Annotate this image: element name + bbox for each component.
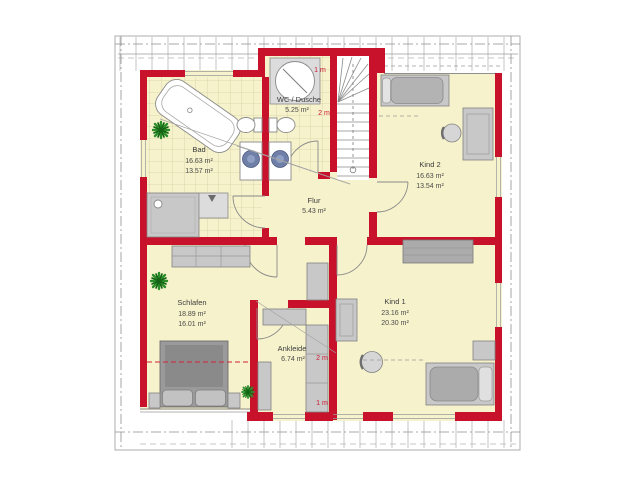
schlafen-net: 16.01 m²	[178, 321, 206, 328]
marker-south-2m: 2 m	[316, 355, 328, 362]
marker-north-1m: 1 m	[314, 67, 326, 74]
kind1-name: Kind 1	[384, 297, 405, 306]
toilet-icon	[237, 118, 262, 133]
closet-icon	[306, 325, 328, 412]
marker-north-2m: 2 m	[318, 110, 330, 117]
nightstand-icon	[473, 341, 495, 360]
wardrobe-icon	[172, 246, 250, 267]
bed-icon	[426, 363, 494, 405]
plant-icon	[151, 273, 167, 289]
toilet-icon	[269, 118, 295, 133]
kind2-gross: 16.63 m²	[416, 173, 444, 180]
kind1-net: 20.30 m²	[381, 320, 409, 327]
desk-icon	[463, 108, 493, 160]
closet-icon	[307, 263, 328, 300]
wc-gross: 5.25 m²	[285, 107, 309, 114]
double-bed-icon	[149, 341, 240, 408]
shelf-icon	[403, 240, 473, 263]
bad-name: Bad	[192, 145, 205, 154]
bad-gross: 16.63 m²	[185, 158, 213, 165]
marker-south-1m: 1 m	[316, 400, 328, 407]
ankleide-gross: 6.74 m²	[281, 356, 305, 363]
chair-icon	[361, 352, 383, 373]
schlafen-gross: 18.89 m²	[178, 311, 206, 318]
wc-name: WC / Dusche	[277, 95, 321, 104]
kind1-gross: 23.16 m²	[381, 310, 409, 317]
closet-icon	[263, 309, 306, 325]
kind2-name: Kind 2	[419, 160, 440, 169]
schlafen-name: Schlafen	[177, 298, 206, 307]
closet-icon	[258, 362, 271, 410]
ankleide-name: Ankleide	[278, 344, 307, 353]
bad-net: 13.57 m²	[185, 168, 213, 175]
flur-gross: 5.43 m²	[302, 208, 326, 215]
floor-plan-page: Bad 16.63 m² 13.57 m² WC / Dusche 5.25 m…	[0, 0, 640, 480]
floor-plan-canvas: Bad 16.63 m² 13.57 m² WC / Dusche 5.25 m…	[0, 0, 640, 480]
desk-icon	[336, 299, 357, 341]
bed-icon	[381, 75, 449, 106]
kind2-net: 13.54 m²	[416, 183, 444, 190]
plant-icon	[242, 386, 254, 398]
plant-icon	[153, 122, 169, 138]
sink-icon	[269, 142, 291, 180]
flur-name: Flur	[308, 196, 321, 205]
